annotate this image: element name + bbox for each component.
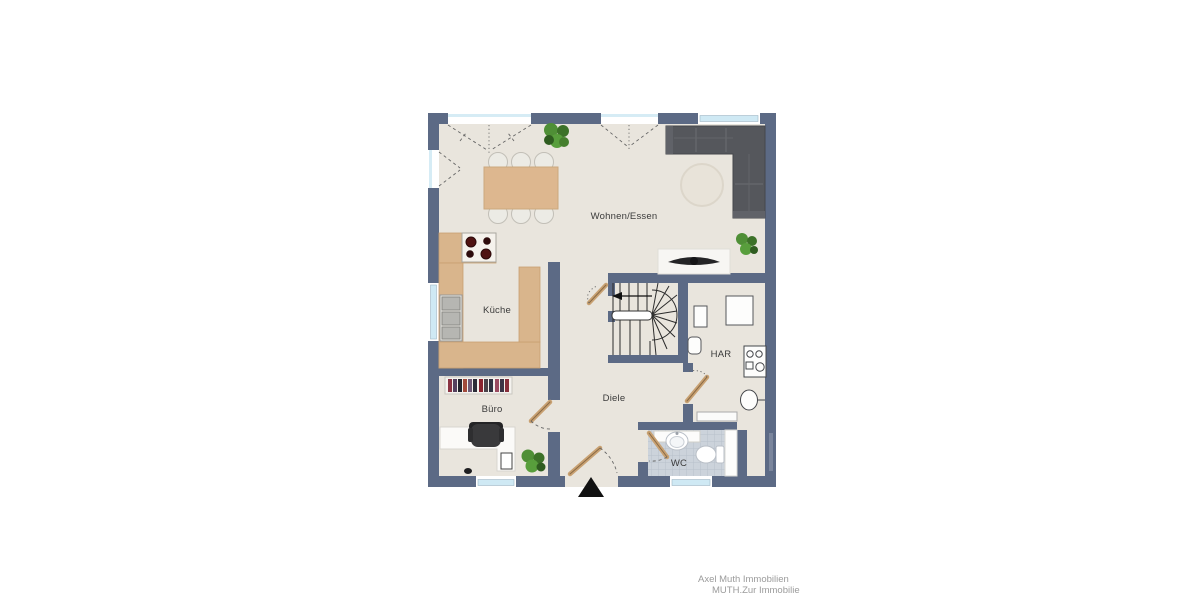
watermark-line2: MUTH.Zur Immobilie <box>712 585 800 596</box>
window-buero-icon <box>476 476 516 487</box>
toilet-icon <box>696 446 724 463</box>
paper-icon <box>501 453 512 469</box>
room-label-har: HAR <box>711 349 732 360</box>
tv-lowboard-icon <box>658 249 730 274</box>
washing-machine-icon <box>744 346 766 377</box>
window-wc-icon <box>670 476 712 487</box>
bookshelf-icon <box>445 377 512 394</box>
office-chair-icon <box>468 422 504 447</box>
plant-icon <box>544 123 569 148</box>
floorplan-image: Wohnen/Essen Küche Büro Diele HAR WC Axe… <box>0 0 1200 600</box>
cabinet-icon <box>694 306 707 327</box>
radiator-icon <box>725 430 737 476</box>
heater-icon <box>688 337 701 354</box>
watermark-line1: Axel Muth Immobilien <box>698 574 789 585</box>
stair-handrail <box>612 311 652 320</box>
dining-table-icon <box>484 167 558 209</box>
stove-icon <box>462 233 496 262</box>
vendor-watermark-vertical <box>769 433 773 471</box>
room-label-diele: Diele <box>603 393 626 404</box>
round-rug-icon <box>681 164 723 206</box>
kitchen-sink-icon <box>440 295 462 341</box>
window-kitchen-icon <box>428 283 439 341</box>
sideboard-icon <box>697 412 737 421</box>
room-label-wohnen-essen: Wohnen/Essen <box>591 211 658 222</box>
dining-set <box>484 153 558 224</box>
wc-room <box>648 430 737 476</box>
room-label-buero: Büro <box>482 404 503 415</box>
room-label-kueche: Küche <box>483 305 511 316</box>
small-object-icon <box>464 468 472 474</box>
floorplan-page: Wohnen/Essen Küche Büro Diele HAR WC Axe… <box>0 0 1200 600</box>
room-label-wc: WC <box>671 458 687 469</box>
wardrobe-icon <box>726 296 753 325</box>
window-top-right-icon <box>698 113 760 124</box>
